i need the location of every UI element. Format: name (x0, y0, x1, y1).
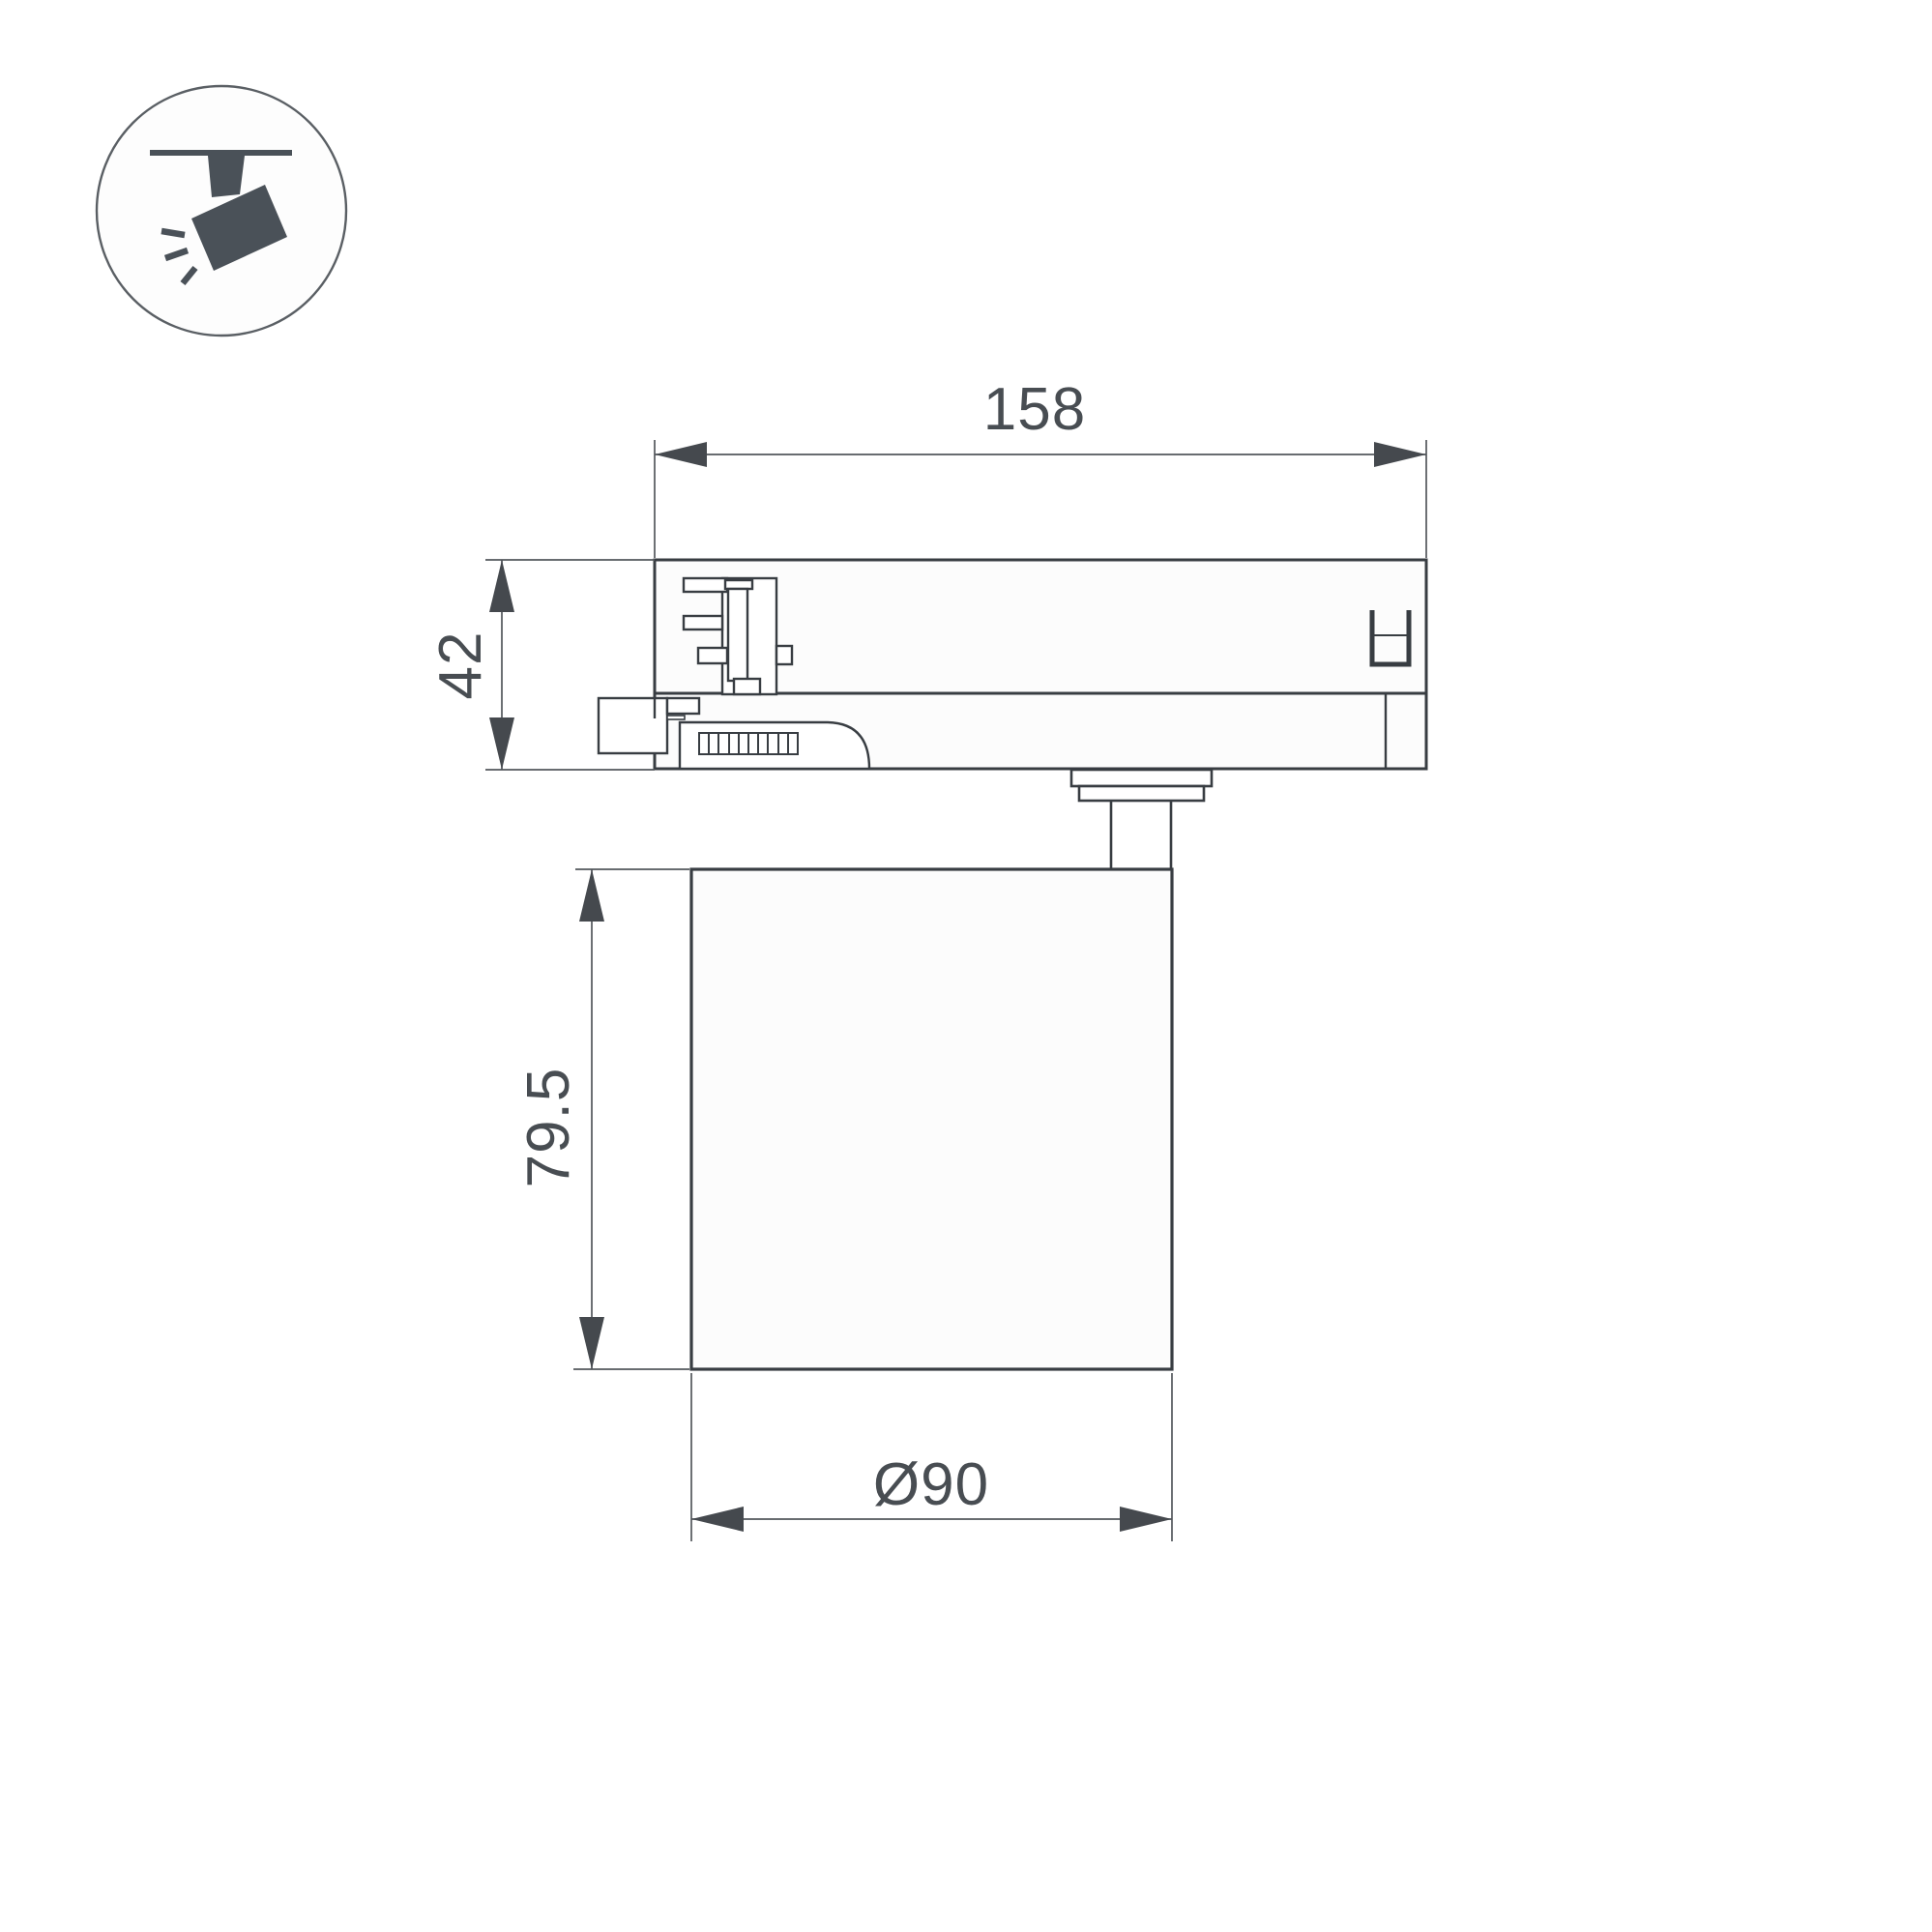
lock-ledge (667, 716, 685, 719)
connector-pin (728, 589, 747, 681)
connector-foot (734, 679, 760, 694)
dimension-body-height: 79.5 (515, 869, 689, 1369)
dimension-body-diameter: Ø90 (691, 1373, 1172, 1541)
arrowhead-up (579, 869, 604, 922)
icon-light-ray (161, 231, 185, 235)
technical-drawing-canvas: 158 42 79.5 Ø90 (0, 0, 1932, 1932)
connector-contact-tab-top (684, 578, 727, 592)
track-adapter (599, 560, 1426, 769)
lock-rib-window (699, 733, 798, 754)
icon-ceiling-track-line (150, 150, 292, 156)
dimension-label-diameter: Ø90 (873, 1451, 989, 1518)
arrowhead-left (691, 1507, 744, 1532)
lock-clamp-block (599, 698, 667, 753)
product-type-icon (97, 86, 346, 336)
arrowhead-left (655, 442, 707, 467)
arrowhead-down (579, 1317, 604, 1369)
connector-contact-tab-bottom (698, 648, 727, 663)
lock-notch (667, 698, 699, 714)
lamp-cylinder-body (691, 869, 1172, 1369)
arrowhead-down (489, 717, 514, 770)
mounting-stem (1071, 770, 1212, 868)
icon-track-stub (208, 156, 245, 197)
dimension-label-width: 158 (983, 376, 1086, 443)
stem-flange-lower (1079, 786, 1204, 801)
dimension-label-body-height: 79.5 (515, 1068, 582, 1188)
arrowhead-right (1374, 442, 1426, 467)
connector-contact-tab-middle (684, 616, 722, 629)
arrowhead-right (1120, 1507, 1172, 1532)
connector-side-protrusion (776, 646, 792, 664)
arrowhead-up (489, 560, 514, 612)
dimension-label-height: 42 (427, 631, 494, 700)
connector-pin-cap (725, 580, 752, 589)
stem-flange-upper (1071, 770, 1212, 786)
dimension-adapter-width: 158 (655, 376, 1426, 558)
